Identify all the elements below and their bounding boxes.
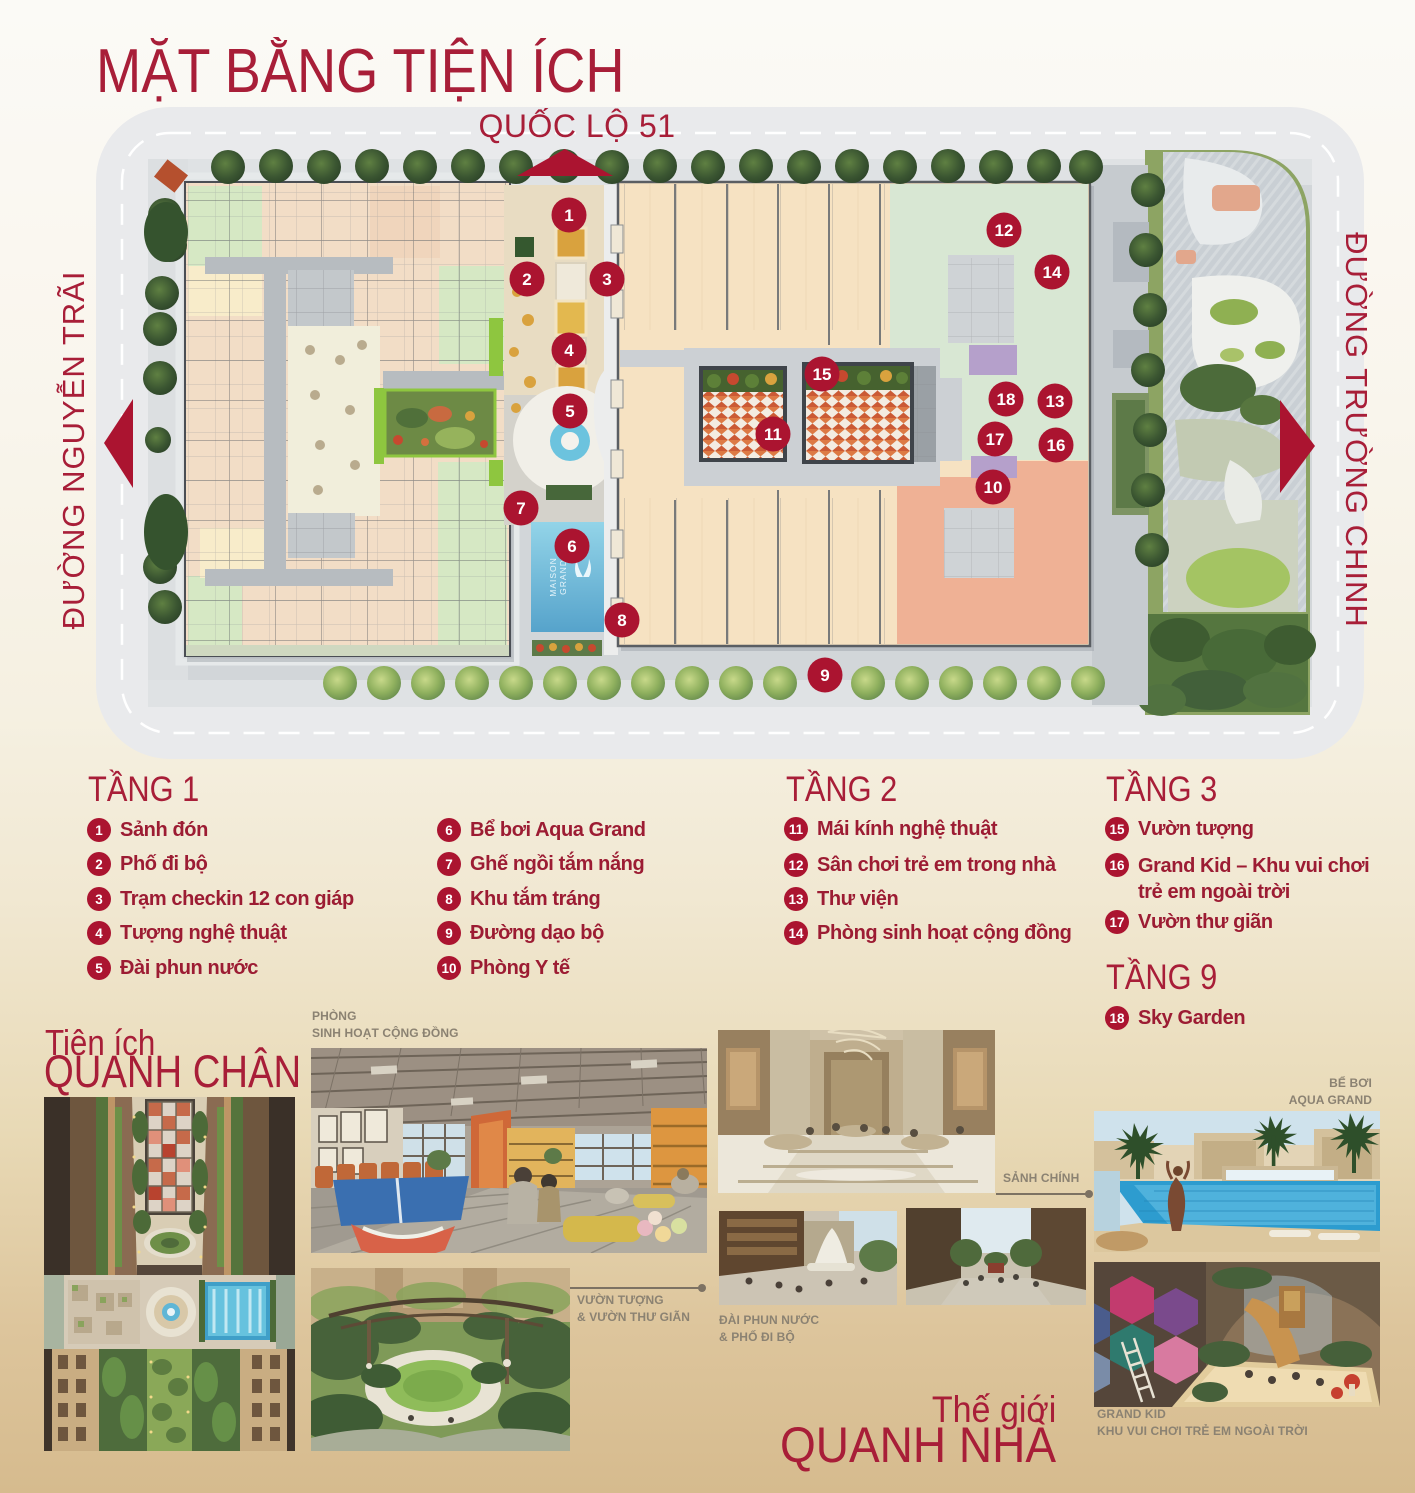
svg-text:MAISON: MAISON [548,557,558,597]
svg-text:3: 3 [602,270,611,289]
svg-text:9: 9 [820,666,829,685]
svg-text:4: 4 [564,341,574,360]
svg-text:QUỐC LỘ 51: QUỐC LỘ 51 [478,108,675,144]
svg-text:17: 17 [986,430,1005,449]
svg-text:10: 10 [984,478,1003,497]
svg-text:8: 8 [617,611,626,630]
svg-text:1: 1 [564,206,573,225]
svg-text:12: 12 [995,221,1014,240]
svg-text:13: 13 [1046,392,1065,411]
svg-text:ĐƯỜNG TRƯỜNG CHINH: ĐƯỜNG TRƯỜNG CHINH [1339,232,1374,628]
svg-text:7: 7 [516,499,525,518]
svg-text:18: 18 [997,390,1016,409]
svg-text:16: 16 [1047,436,1066,455]
svg-text:ĐƯỜNG NGUYỄN TRÃI: ĐƯỜNG NGUYỄN TRÃI [56,271,91,630]
svg-text:11: 11 [764,425,782,444]
svg-text:2: 2 [522,270,531,289]
svg-text:6: 6 [567,537,576,556]
svg-text:15: 15 [813,365,832,384]
svg-text:5: 5 [565,402,574,421]
svg-text:GRAND: GRAND [558,559,568,595]
svg-text:14: 14 [1043,263,1062,282]
